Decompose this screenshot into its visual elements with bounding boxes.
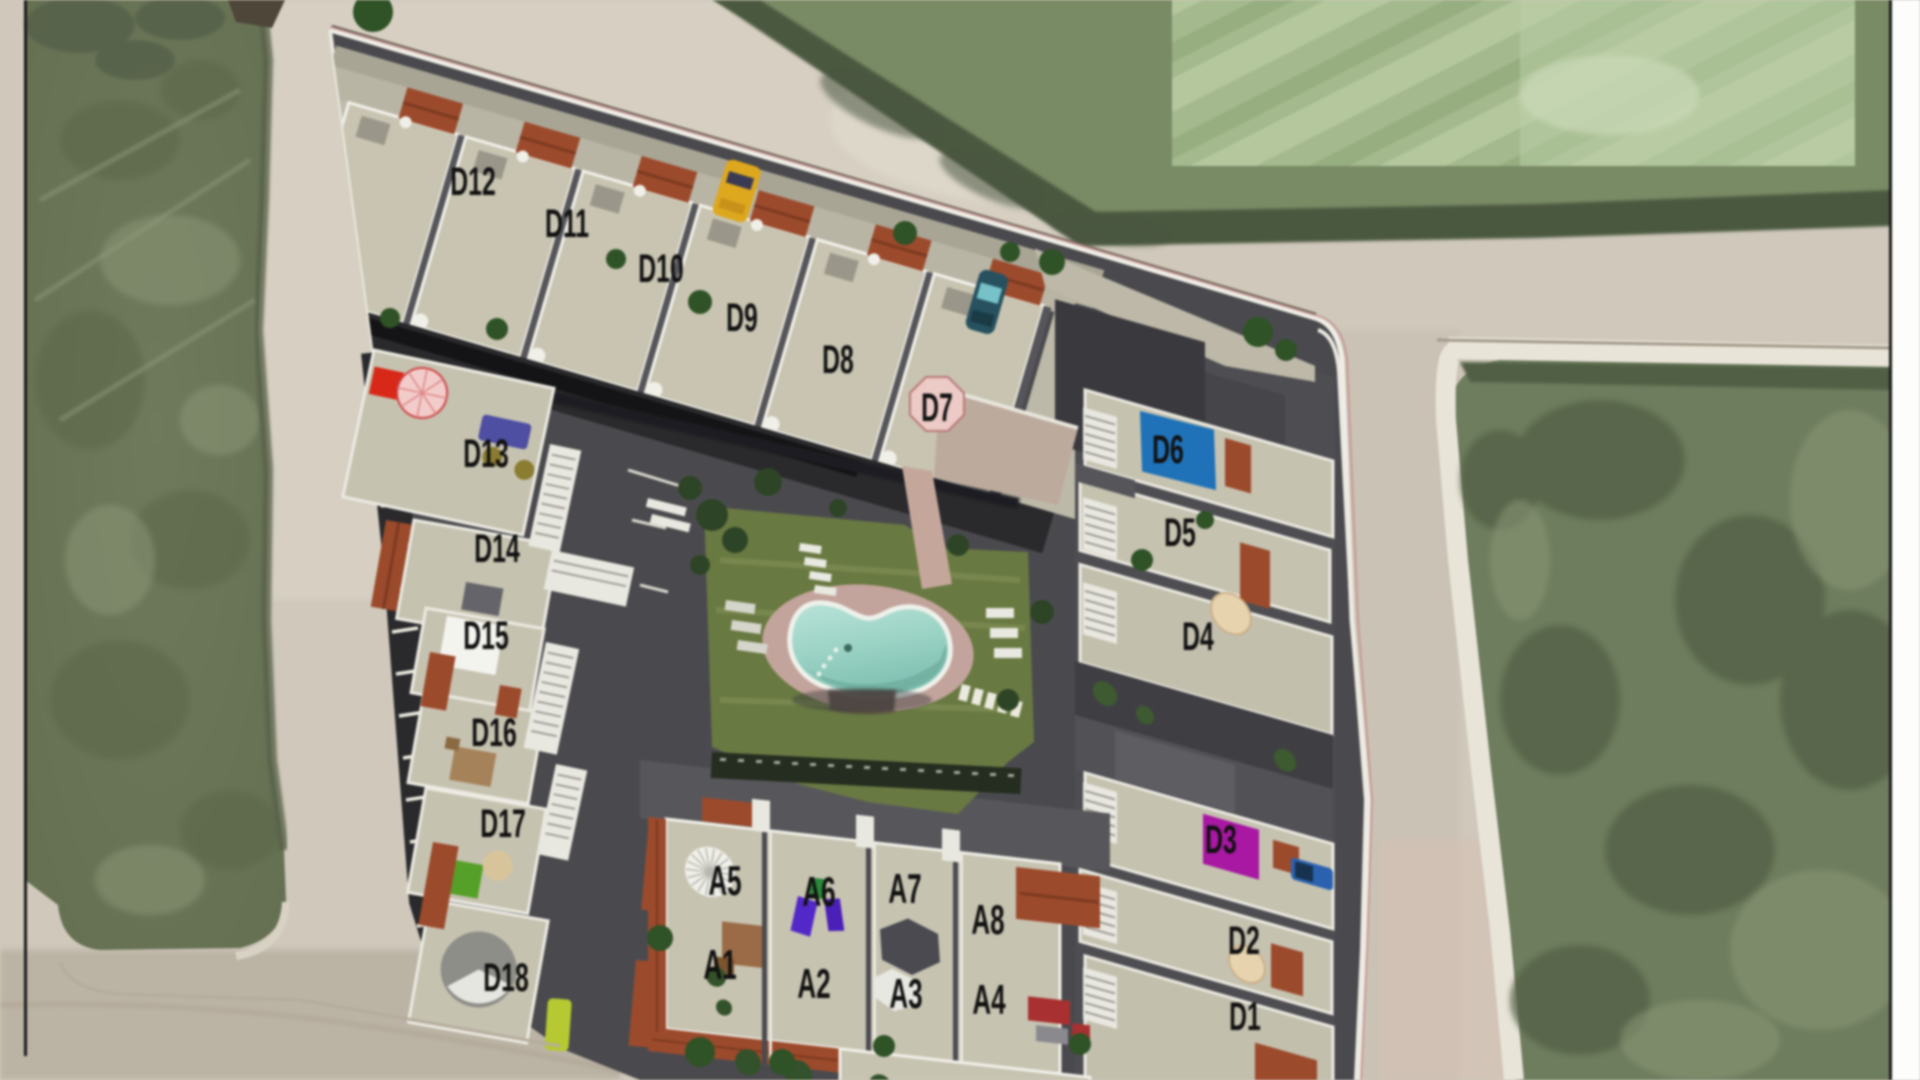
svg-text:D16: D16 xyxy=(471,711,516,755)
svg-text:D4: D4 xyxy=(1182,615,1214,659)
svg-text:D10: D10 xyxy=(638,247,683,291)
svg-text:A1: A1 xyxy=(703,942,736,989)
svg-text:A4: A4 xyxy=(972,977,1006,1024)
svg-text:D7: D7 xyxy=(921,386,953,430)
svg-text:D6: D6 xyxy=(1152,428,1184,472)
svg-text:D18: D18 xyxy=(483,956,528,1000)
svg-text:D5: D5 xyxy=(1164,511,1196,555)
svg-text:D12: D12 xyxy=(450,160,495,204)
svg-text:D3: D3 xyxy=(1205,818,1237,862)
svg-text:A7: A7 xyxy=(888,866,921,913)
svg-text:D17: D17 xyxy=(480,802,525,846)
svg-text:D15: D15 xyxy=(463,614,508,658)
svg-text:D14: D14 xyxy=(474,527,520,571)
svg-text:D11: D11 xyxy=(545,202,589,246)
svg-text:D8: D8 xyxy=(822,338,854,382)
svg-text:A6: A6 xyxy=(802,869,835,916)
svg-text:A2: A2 xyxy=(797,961,830,1008)
svg-text:A5: A5 xyxy=(708,858,741,905)
svg-text:A3: A3 xyxy=(889,971,922,1018)
svg-text:A8: A8 xyxy=(971,897,1004,944)
svg-text:D9: D9 xyxy=(726,296,758,340)
svg-text:D2: D2 xyxy=(1228,919,1260,963)
svg-text:D13: D13 xyxy=(463,432,508,476)
svg-text:D1: D1 xyxy=(1229,995,1261,1039)
